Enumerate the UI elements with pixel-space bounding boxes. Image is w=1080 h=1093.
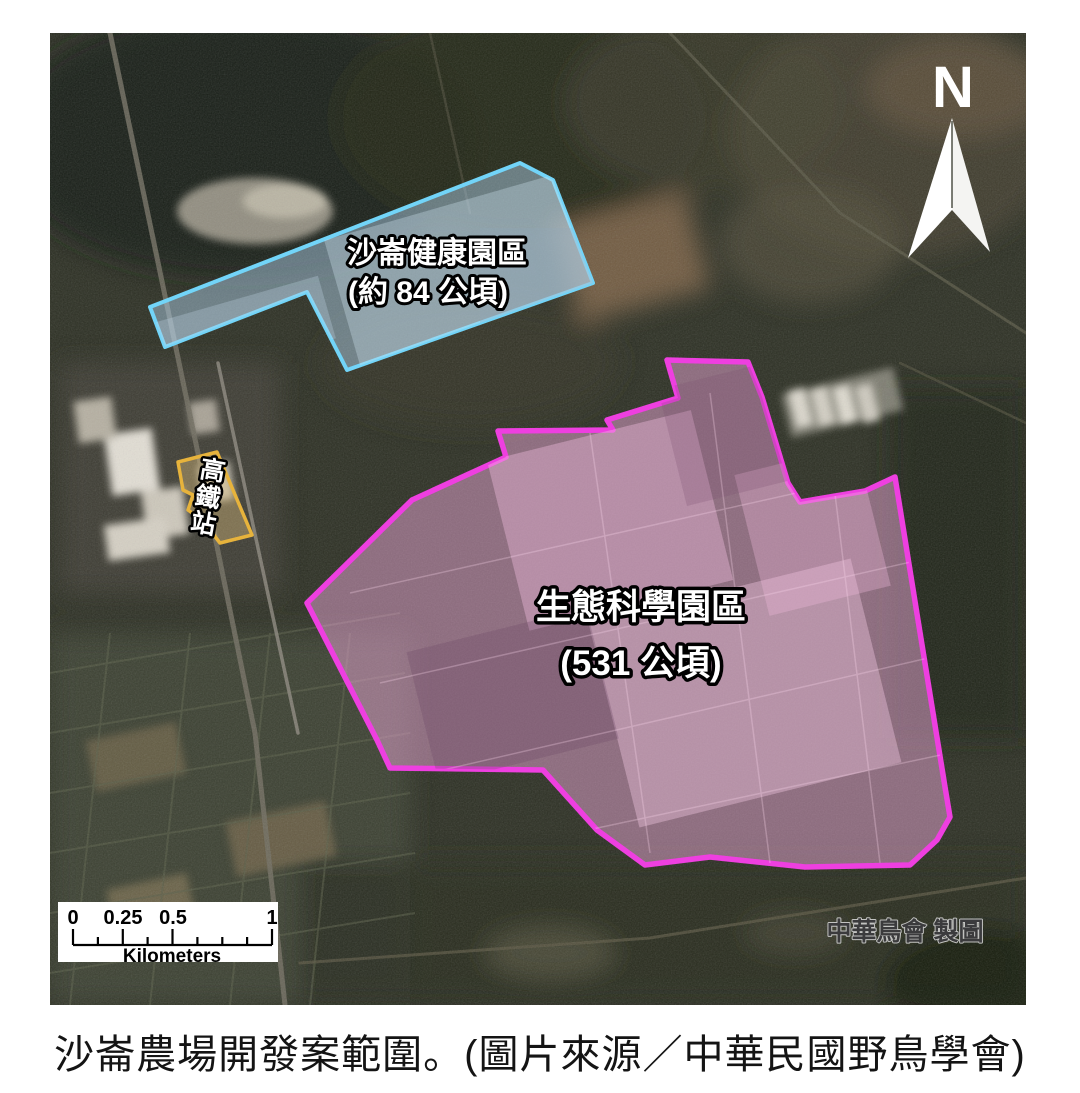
health-park-label-line2: (約 84 公頃) (348, 276, 508, 309)
figure-caption: 沙崙農場開發案範圍。(圖片來源／中華民國野鳥學會) (0, 1013, 1080, 1089)
health-park-label-line1: 沙崙健康園區 (347, 236, 527, 270)
svg-text:Kilometers: Kilometers (123, 946, 221, 967)
svg-text:0.25: 0.25 (104, 907, 143, 929)
science-park-label-line2: (531 公頃) (560, 644, 721, 683)
map-credit: 中華鳥會 製圖 (827, 917, 984, 946)
figure-page: 沙崙健康園區 (約 84 公頃) (0, 0, 1080, 1093)
svg-text:0.5: 0.5 (159, 907, 187, 929)
satellite-map: 沙崙健康園區 (約 84 公頃) (50, 33, 1026, 1005)
map-canvas: 沙崙健康園區 (約 84 公頃) (50, 33, 1026, 1005)
north-letter: N (932, 55, 974, 120)
svg-text:0: 0 (67, 907, 78, 929)
scale-bar: 0 0.25 0.5 1 Kilometers (58, 902, 278, 967)
svg-text:站: 站 (188, 508, 217, 540)
svg-text:1: 1 (266, 907, 277, 929)
science-park-label-line1: 生態科學園區 (536, 588, 746, 627)
